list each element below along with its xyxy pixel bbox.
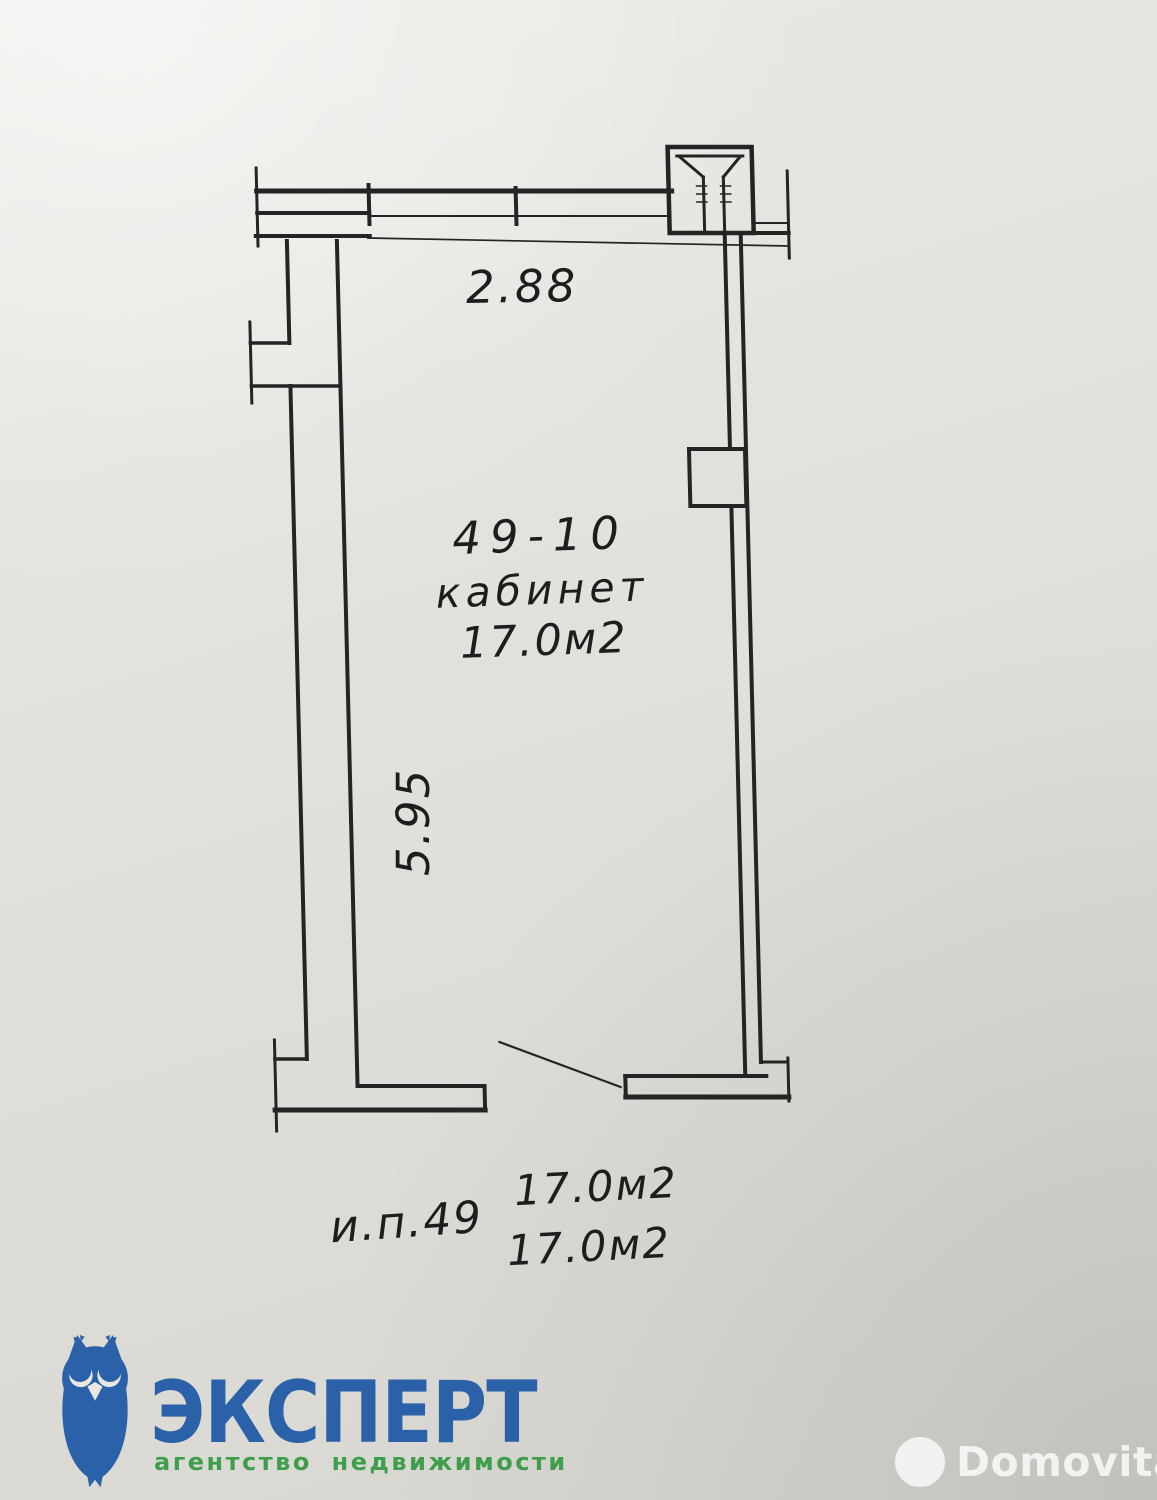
area-annotation-1: 17.0м2	[513, 1159, 679, 1216]
owl-icon	[48, 1332, 142, 1494]
floor-plan-drawing	[0, 0, 1157, 1500]
dim-tick-top-right	[787, 171, 789, 258]
domovita-watermark: Domovita	[895, 1437, 1157, 1487]
unit-annotation: и.п.49	[328, 1193, 484, 1254]
wall-left-outer-lower	[290, 386, 306, 1059]
dim-tick-bottom-left	[274, 1040, 276, 1131]
pier-left-edge	[250, 322, 252, 403]
vent-shaft-outline	[668, 147, 754, 233]
agency-name: ЭКСПЕРТ	[150, 1370, 537, 1456]
window-jamb-left	[369, 185, 370, 224]
floor-plan-photo: 2.88 5.95 49-10 кабинет 17.0м2 и.п.49 17…	[0, 0, 1157, 1500]
watermark-label: Domovita	[956, 1442, 1157, 1483]
window-jamb-mid	[516, 188, 517, 224]
room-number: 49-10	[365, 504, 715, 568]
vent-funnel-left	[680, 157, 703, 177]
agency-tagline: агентство недвижимости	[154, 1448, 568, 1476]
room-label: 49-10 кабинет 17.0м2	[365, 504, 718, 672]
vent-neck-right	[723, 177, 724, 231]
agency-logo: ЭКСПЕРТ агентство недвижимости	[48, 1332, 568, 1494]
area-annotation-2: 17.0м2	[506, 1219, 672, 1276]
dimension-top: 2.88	[466, 260, 579, 314]
vent-funnel-right	[723, 157, 740, 177]
door-jamb-left	[485, 1086, 486, 1110]
domovita-circle-icon	[895, 1437, 945, 1487]
wall-niche-box	[689, 449, 746, 506]
room-type: кабинет	[367, 561, 716, 620]
dimension-left: 5.95	[388, 768, 440, 876]
wall-left-inner	[337, 241, 358, 1086]
vent-hatching	[697, 186, 731, 202]
door-jamb-right	[625, 1076, 626, 1097]
dim-tick-bottom-right	[788, 1058, 789, 1101]
wall-left-outer-upper	[287, 241, 289, 343]
vent-neck-left	[703, 177, 704, 231]
door-leaf-line	[499, 1042, 620, 1087]
